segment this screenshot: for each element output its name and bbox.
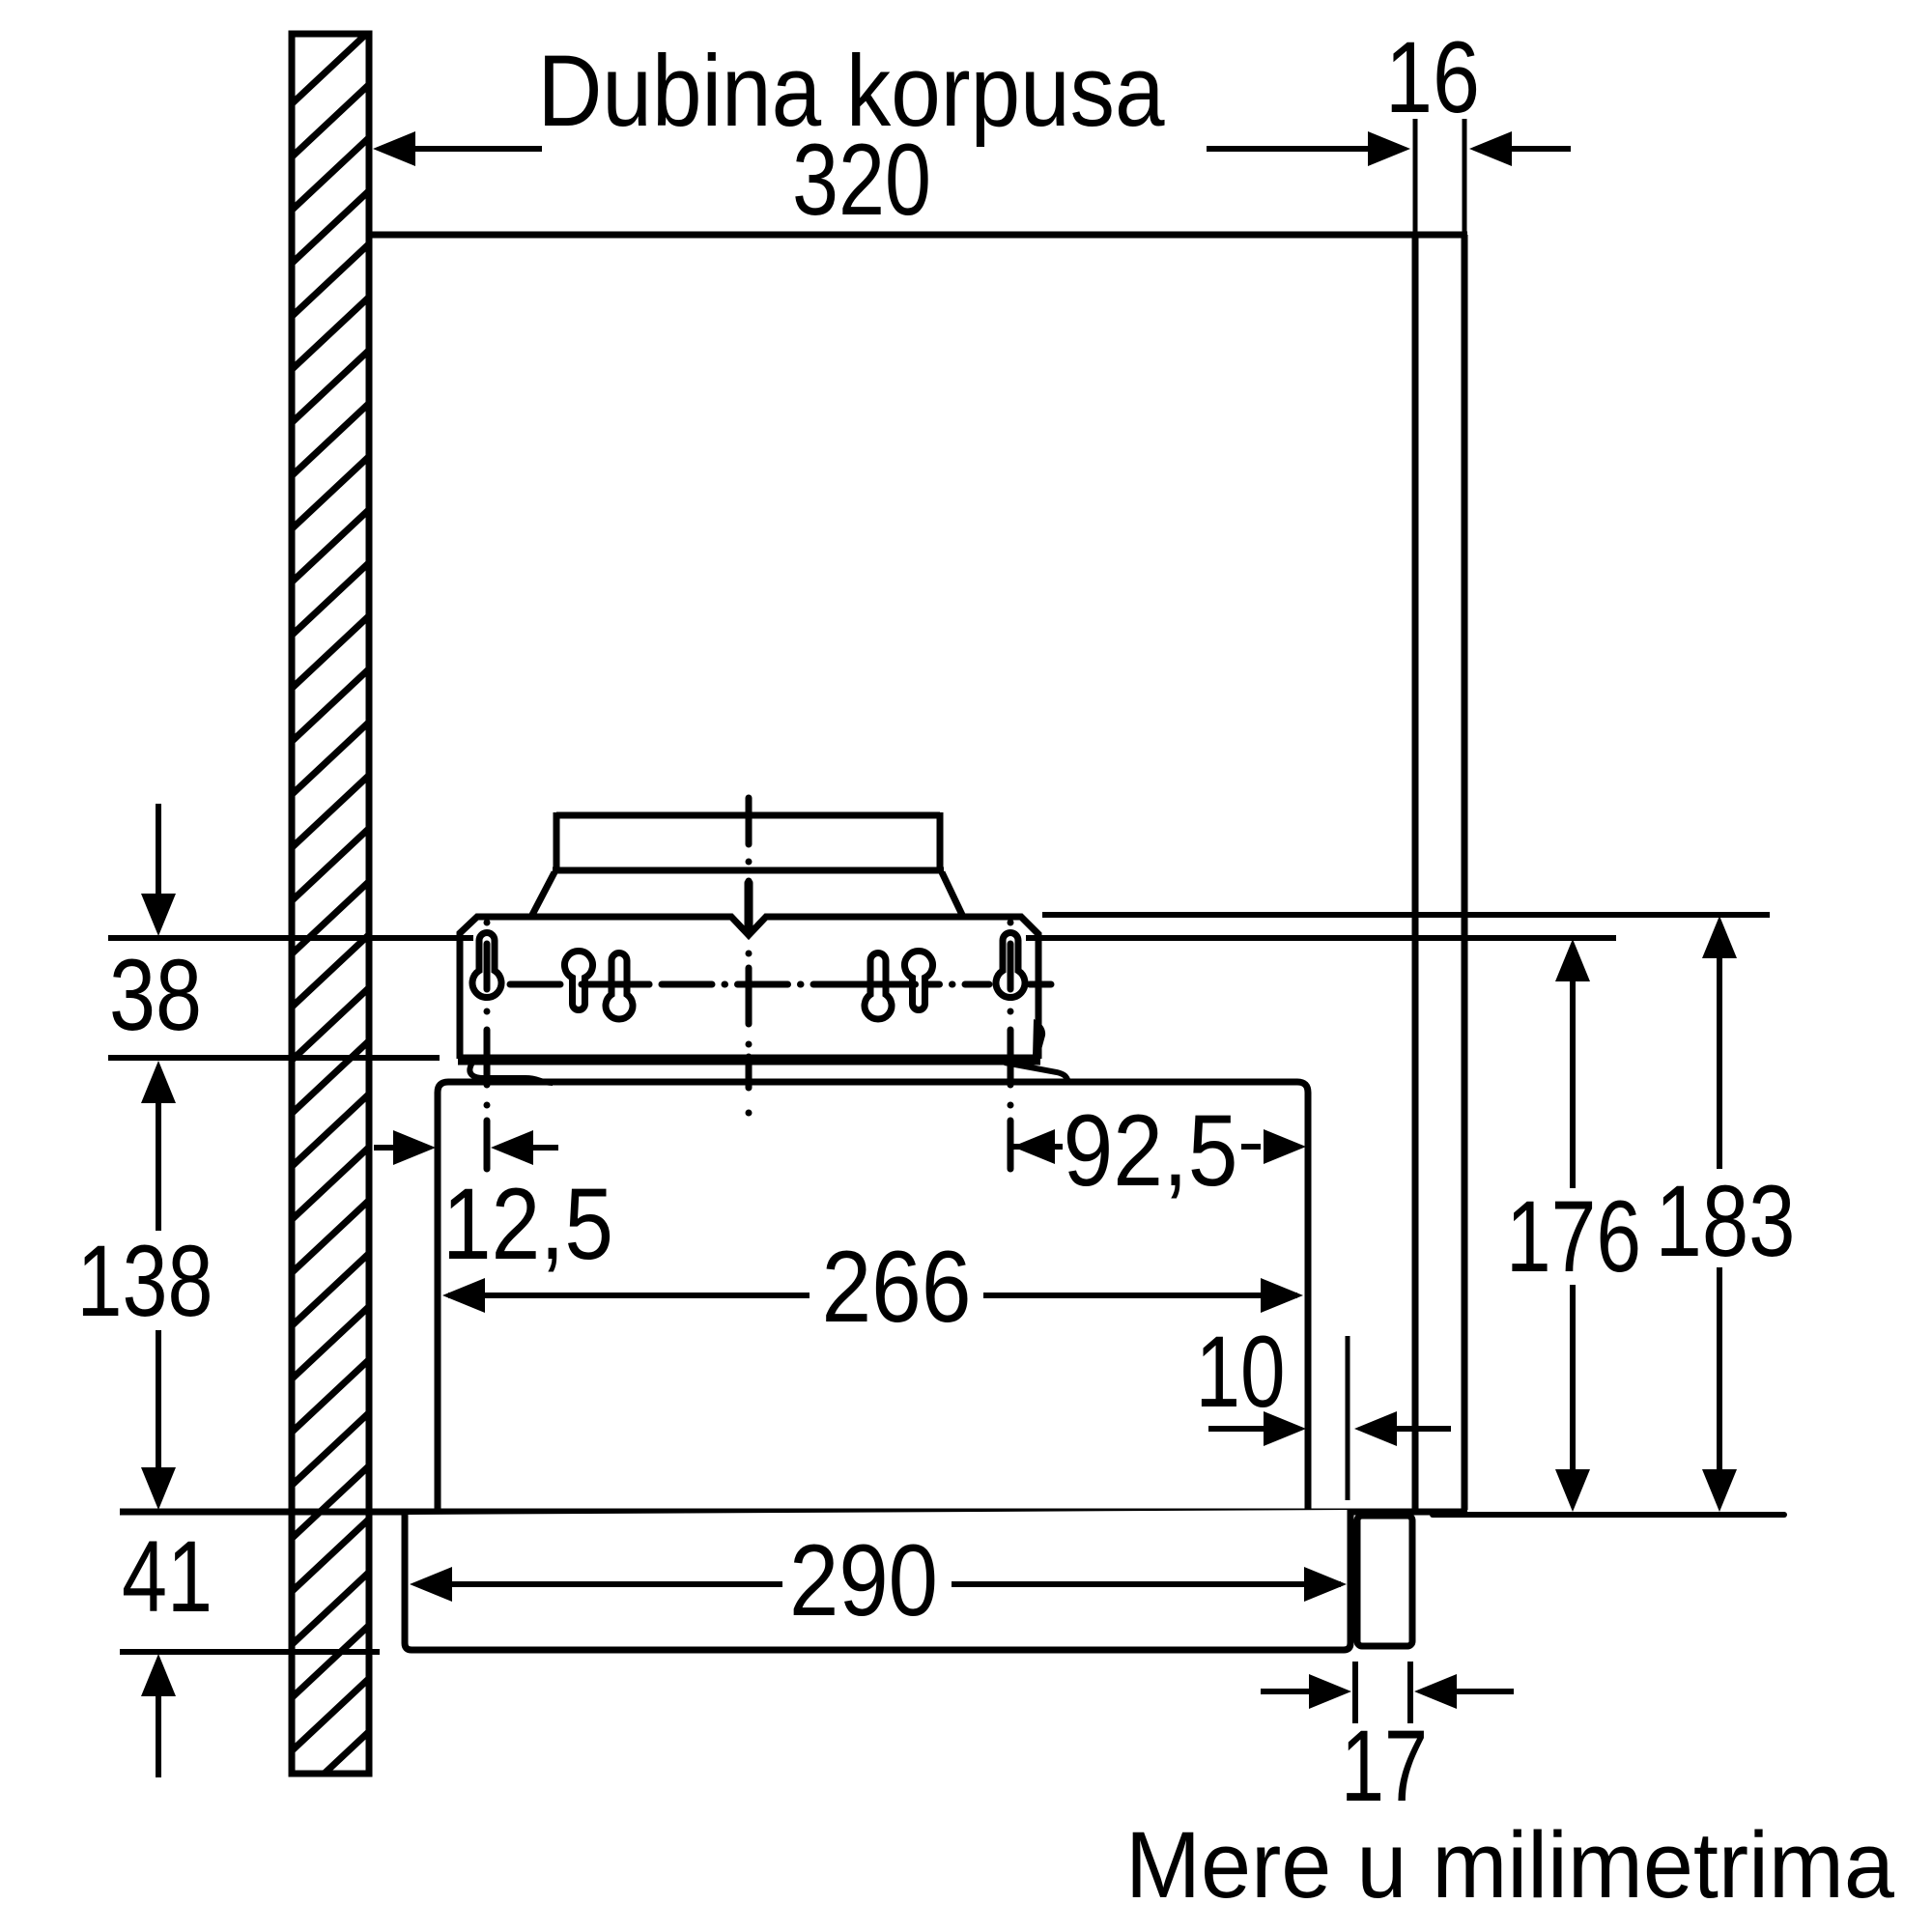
svg-text:266: 266 [822, 1231, 972, 1344]
svg-text:12,5: 12,5 [442, 1168, 613, 1281]
svg-text:41: 41 [122, 1520, 213, 1634]
svg-text:290: 290 [789, 1524, 938, 1637]
svg-text:38: 38 [109, 939, 202, 1052]
svg-text:320: 320 [792, 124, 931, 237]
svg-text:176: 176 [1506, 1180, 1641, 1293]
svg-text:Mere u milimetrima: Mere u milimetrima [1125, 1812, 1894, 1918]
svg-text:16: 16 [1385, 21, 1480, 134]
svg-text:17: 17 [1341, 1710, 1428, 1823]
svg-text:183: 183 [1656, 1165, 1796, 1278]
svg-text:92,5: 92,5 [1064, 1094, 1238, 1207]
svg-text:138: 138 [77, 1225, 213, 1338]
svg-text:10: 10 [1196, 1316, 1286, 1429]
